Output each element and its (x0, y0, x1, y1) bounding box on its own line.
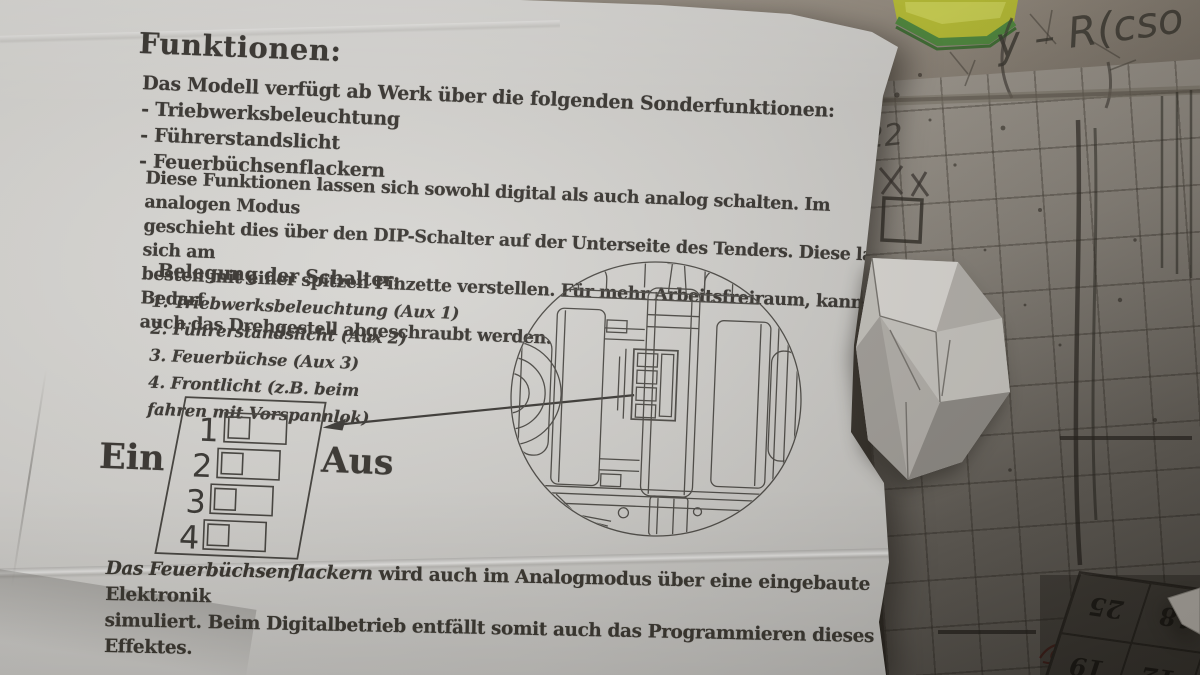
footer-lead: Das Feuerbüchsenflackern (106, 558, 373, 585)
drawing-details (451, 239, 807, 567)
instruction-sheet: Funktionen: Das Modell verfügt ab Werk ü… (0, 0, 1200, 675)
instruction-sheet-wrap: Funktionen: Das Modell verfügt ab Werk ü… (0, 0, 1200, 675)
pointer-arrow (323, 383, 635, 442)
photo-scene: y – R(cso 22 (0, 0, 1200, 675)
footer-paragraph: Das Feuerbüchsenflackern wird auch im An… (104, 556, 906, 675)
